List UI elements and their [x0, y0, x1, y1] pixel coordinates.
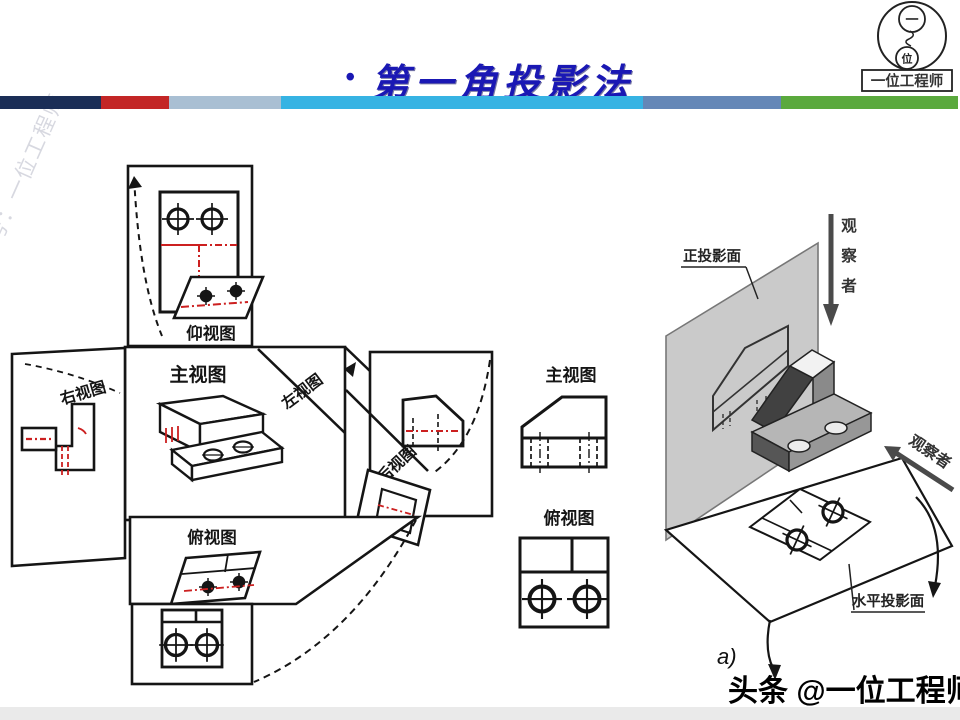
observer-char: 察 [840, 246, 857, 265]
label-frontal-plane: 正投影面 [683, 248, 741, 265]
observer-arrowhead [823, 304, 839, 326]
footer-credit: 头条 @一位工程师 [728, 666, 960, 710]
flat-top-label: 俯视图 [544, 508, 595, 528]
top-view-flap [130, 517, 418, 604]
observer-char: 者 [840, 276, 857, 295]
slide: 头条号：一位工程师 •第一角投影法 一 位 一位工程师 [0, 0, 960, 720]
diagram-canvas: 仰视图 主视图 右视图 [0, 0, 960, 720]
flat-top-view [520, 538, 608, 627]
bottom-strip [0, 707, 960, 720]
rotate-arrow [768, 620, 773, 668]
label-front-view: 主视图 [169, 363, 226, 386]
unfold-projection-diagram: 仰视图 主视图 右视图 [12, 166, 492, 684]
label-top-view: 俯视图 [187, 527, 237, 547]
flat-views: 主视图 俯视图 [520, 365, 608, 627]
flat-front-label: 主视图 [546, 365, 597, 385]
label-bottom-view: 仰视图 [186, 323, 236, 343]
bottom-view-flap [174, 277, 263, 318]
flat-front-view [522, 397, 606, 467]
top-view-tilted-shape [171, 552, 260, 604]
observer-char: 观 [841, 217, 857, 235]
projection-scene: 正投影面 观 察 者 观察者 水平投影面 [666, 214, 955, 680]
label-horizontal-plane: 水平投影面 [852, 592, 925, 610]
rotate-arrowhead [928, 581, 941, 598]
observer-top: 观 察 者 [823, 214, 857, 326]
hole [788, 440, 810, 452]
hole [825, 422, 847, 434]
